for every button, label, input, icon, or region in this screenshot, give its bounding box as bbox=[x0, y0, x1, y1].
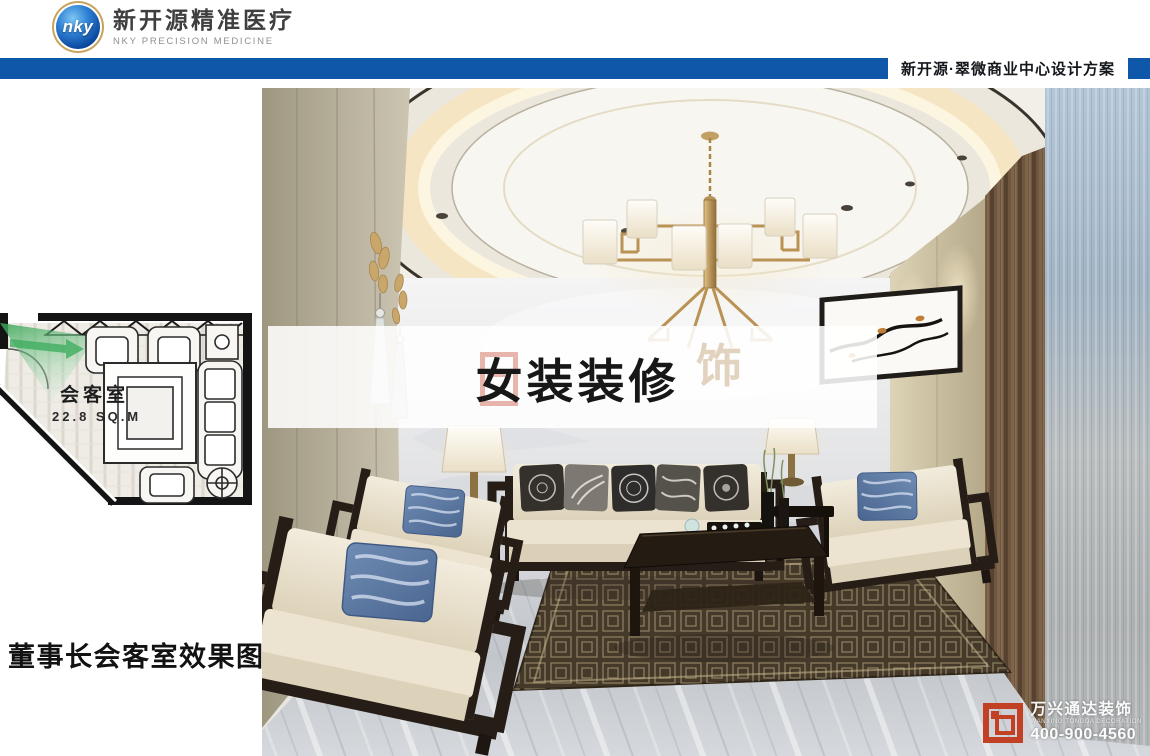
floorplan-drawing: 会客室 22.8 SQ.M bbox=[0, 297, 256, 529]
brand-text: 新开源精准医疗 NKY PRECISION MEDICINE bbox=[113, 7, 295, 47]
nky-globe-icon: nky bbox=[56, 5, 100, 49]
curtain-sheer bbox=[1045, 88, 1150, 756]
plan-wall-top bbox=[38, 313, 252, 321]
vendor-watermark: 万兴通达装饰 WANXING TONGDA DECORATION 400-900… bbox=[983, 702, 1142, 744]
room-area-label: 22.8 SQ.M bbox=[52, 409, 141, 424]
room-name-label: 会客室 bbox=[60, 383, 129, 406]
title-bar: 新开源·翠微商业中心设计方案 bbox=[0, 58, 1150, 79]
interior-photo: 饰 女装装修 万兴通达装饰 WANXING TONGDA DECORATION … bbox=[262, 88, 1150, 756]
overlay-headline: 女装装修 bbox=[466, 343, 680, 412]
logo-monogram: nky bbox=[63, 17, 94, 37]
plan-wall-right bbox=[243, 313, 252, 505]
company-logo: nky 新开源精准医疗 NKY PRECISION MEDICINE bbox=[52, 5, 295, 49]
vendor-phone: 400-900-4560 bbox=[1031, 727, 1142, 744]
brand-name-en: NKY PRECISION MEDICINE bbox=[113, 36, 295, 47]
watermark-glyph: 饰 bbox=[696, 330, 742, 396]
sofa-pillows bbox=[519, 464, 749, 513]
project-title-box: 新开源·翠微商业中心设计方案 bbox=[888, 58, 1128, 79]
project-title: 新开源·翠微商业中心设计方案 bbox=[901, 58, 1115, 79]
brand-name-cn: 新开源精准医疗 bbox=[113, 7, 295, 33]
overlay-banner: 饰 女装装修 bbox=[268, 326, 877, 428]
render-caption: 董事长会客室效果图 bbox=[8, 635, 265, 674]
vendor-logo-icon bbox=[983, 703, 1023, 743]
header: nky 新开源精准医疗 NKY PRECISION MEDICINE bbox=[0, 0, 1150, 58]
presentation-slide: nky 新开源精准医疗 NKY PRECISION MEDICINE 新开源·翠… bbox=[0, 0, 1150, 756]
vendor-name-en: WANXING TONGDA DECORATION bbox=[1031, 719, 1142, 725]
vendor-name-cn: 万兴通达装饰 bbox=[1031, 702, 1142, 718]
